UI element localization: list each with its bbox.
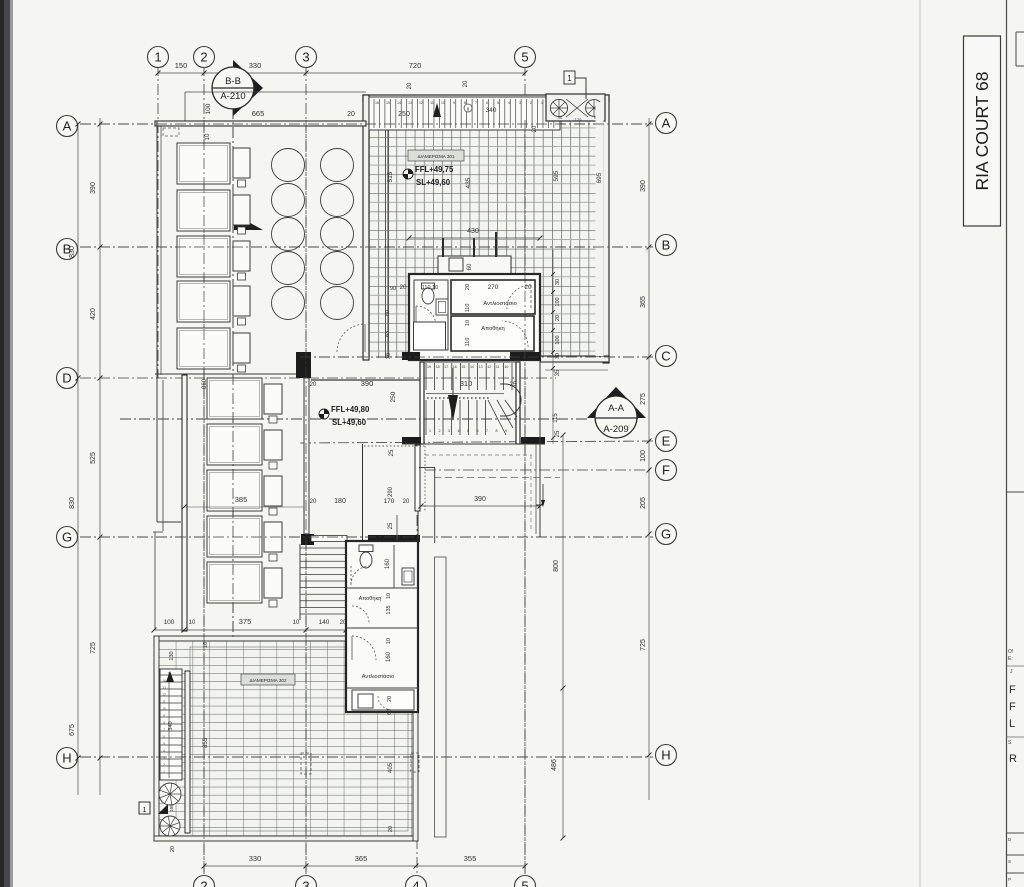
svg-text:G: G: [62, 530, 72, 545]
svg-text:20: 20: [310, 382, 317, 388]
svg-text:E:: E:: [1008, 656, 1013, 662]
svg-text:110 10: 110 10: [422, 285, 438, 291]
svg-text:6: 6: [163, 735, 165, 739]
svg-text:330: 330: [249, 61, 262, 70]
svg-text:310: 310: [460, 379, 473, 388]
svg-text:275: 275: [640, 393, 647, 405]
svg-text:14: 14: [397, 101, 401, 105]
svg-text:355: 355: [464, 854, 477, 863]
svg-text:3: 3: [519, 101, 521, 105]
svg-text:515: 515: [387, 171, 394, 182]
svg-text:ΔΙΑΜΕΡΙΣΜΑ 301: ΔΙΑΜΕΡΙΣΜΑ 301: [417, 154, 455, 159]
svg-text:4: 4: [508, 101, 510, 105]
svg-text:725: 725: [640, 639, 647, 651]
svg-text:2: 2: [163, 763, 165, 767]
svg-text:C: C: [661, 349, 670, 364]
svg-text:420: 420: [90, 308, 97, 320]
svg-text:14: 14: [162, 679, 166, 683]
svg-text:A-210: A-210: [220, 91, 245, 102]
svg-text:100: 100: [555, 335, 561, 344]
svg-text:20: 20: [387, 696, 393, 702]
svg-text:665: 665: [252, 109, 265, 118]
svg-text:60: 60: [387, 709, 393, 715]
svg-text:11: 11: [162, 700, 166, 704]
svg-text:1: 1: [142, 805, 146, 814]
svg-text:595: 595: [553, 170, 560, 181]
svg-text:430: 430: [467, 228, 479, 235]
svg-text:100: 100: [164, 619, 175, 626]
svg-text:115: 115: [553, 413, 559, 423]
svg-text:6: 6: [486, 101, 488, 105]
svg-text:1: 1: [429, 429, 431, 433]
svg-text:90: 90: [558, 115, 563, 120]
svg-text:20: 20: [310, 499, 317, 505]
svg-text:1: 1: [567, 74, 572, 83]
svg-text:390: 390: [90, 182, 97, 194]
svg-text:5: 5: [163, 742, 165, 746]
svg-text:Αντλιοστάσιο: Αντλιοστάσιο: [483, 300, 517, 307]
svg-text:30: 30: [555, 279, 561, 285]
svg-text:5: 5: [497, 101, 499, 105]
svg-text:1: 1: [541, 101, 543, 105]
svg-text:2: 2: [200, 879, 207, 887]
svg-text:4: 4: [412, 879, 419, 887]
svg-text:486: 486: [551, 759, 558, 771]
svg-text:7: 7: [163, 728, 165, 732]
svg-text:20: 20: [170, 846, 176, 852]
svg-text:12: 12: [419, 101, 423, 105]
svg-text:A: A: [662, 116, 671, 131]
svg-text:170: 170: [575, 117, 582, 122]
svg-text:695: 695: [596, 172, 603, 183]
svg-text:525: 525: [90, 452, 97, 464]
svg-text:4: 4: [458, 429, 460, 433]
svg-text:7: 7: [486, 429, 488, 433]
svg-text:10: 10: [162, 707, 166, 711]
svg-text:390: 390: [361, 379, 374, 388]
svg-text:83: 83: [385, 331, 391, 337]
svg-text:F: F: [662, 463, 670, 478]
svg-text:2: 2: [530, 101, 532, 105]
svg-text:11: 11: [430, 101, 434, 105]
svg-text:R: R: [1009, 753, 1017, 765]
svg-text:Αποθήκη: Αποθήκη: [481, 325, 505, 332]
svg-text:13: 13: [479, 365, 483, 369]
svg-text:8: 8: [496, 429, 498, 433]
svg-text:A-A: A-A: [608, 403, 625, 414]
svg-text:15: 15: [461, 365, 465, 369]
svg-text:4: 4: [163, 749, 165, 753]
svg-text:9: 9: [505, 429, 507, 433]
svg-text:5: 5: [467, 429, 469, 433]
svg-text:3: 3: [163, 756, 165, 760]
svg-text:60: 60: [467, 263, 473, 270]
svg-text:20: 20: [525, 285, 532, 291]
svg-text:110: 110: [465, 338, 471, 347]
svg-text:FFL+49,75: FFL+49,75: [415, 165, 454, 174]
svg-text:B: B: [662, 238, 671, 253]
svg-text:205: 205: [640, 497, 647, 509]
svg-text:D: D: [62, 371, 71, 386]
svg-text:ΔΙΑΜΕΡΙΣΜΑ 302: ΔΙΑΜΕΡΙΣΜΑ 302: [249, 678, 287, 683]
svg-text:365: 365: [355, 854, 368, 863]
svg-text:110: 110: [465, 304, 471, 313]
svg-text:H: H: [62, 751, 71, 766]
svg-text:12: 12: [162, 693, 166, 697]
svg-text:18: 18: [436, 365, 440, 369]
svg-text:5: 5: [521, 50, 528, 65]
svg-text:270: 270: [488, 284, 499, 291]
svg-text:135: 135: [386, 605, 392, 614]
svg-text:160: 160: [386, 651, 392, 662]
svg-text:160: 160: [385, 558, 391, 569]
svg-text:A-209: A-209: [603, 424, 628, 435]
svg-text:130: 130: [169, 651, 175, 660]
svg-text:H: H: [661, 748, 670, 763]
svg-text:20: 20: [403, 499, 410, 505]
svg-text:80: 80: [385, 310, 391, 316]
svg-text:19: 19: [427, 365, 431, 369]
svg-text:800: 800: [553, 560, 560, 572]
svg-text:10: 10: [205, 133, 211, 140]
svg-text:5: 5: [521, 879, 528, 887]
svg-text:105: 105: [169, 804, 174, 812]
svg-text:3: 3: [302, 879, 309, 887]
svg-text:140: 140: [319, 619, 330, 626]
svg-text:365: 365: [640, 296, 647, 308]
svg-text:20: 20: [532, 125, 538, 132]
svg-text:340: 340: [486, 107, 497, 114]
svg-text:100: 100: [555, 297, 561, 306]
svg-text:15: 15: [386, 101, 390, 105]
svg-text:2: 2: [200, 50, 207, 65]
svg-text:675: 675: [69, 724, 76, 736]
svg-text:830: 830: [69, 497, 76, 509]
svg-text:290: 290: [388, 486, 394, 497]
svg-text:725: 725: [90, 642, 97, 654]
svg-text:10: 10: [386, 638, 392, 644]
svg-text:435: 435: [465, 177, 472, 188]
svg-text:20: 20: [400, 285, 407, 291]
svg-text:340: 340: [168, 721, 174, 730]
svg-text:10: 10: [386, 593, 392, 599]
svg-text:RIA COURT 68: RIA COURT 68: [972, 72, 992, 191]
svg-text:16: 16: [375, 101, 379, 105]
svg-text:G: G: [661, 527, 671, 542]
svg-text:9: 9: [163, 714, 165, 718]
svg-text:11: 11: [496, 365, 500, 369]
svg-text:390: 390: [474, 496, 486, 503]
svg-text:330: 330: [249, 854, 262, 863]
svg-text:Αποθήκη: Αποθήκη: [359, 595, 382, 602]
svg-text:20: 20: [347, 111, 355, 118]
svg-text:405: 405: [388, 762, 394, 773]
svg-text:13: 13: [162, 686, 166, 690]
svg-text:100: 100: [205, 103, 212, 114]
svg-text:385: 385: [235, 495, 248, 504]
svg-text:10: 10: [441, 101, 445, 105]
svg-text:720: 720: [409, 61, 422, 70]
svg-text:1: 1: [163, 770, 165, 774]
svg-text:30: 30: [386, 353, 392, 359]
svg-text:20: 20: [388, 826, 394, 832]
svg-text:30: 30: [555, 353, 561, 359]
svg-text:3: 3: [448, 429, 450, 433]
svg-text:830: 830: [69, 246, 76, 258]
svg-text:20: 20: [463, 80, 469, 87]
svg-text:375: 375: [239, 617, 252, 626]
svg-text:A: A: [63, 119, 72, 134]
svg-text:9: 9: [453, 101, 455, 105]
svg-text:8: 8: [163, 721, 165, 725]
svg-text:20: 20: [555, 315, 561, 321]
svg-text:25: 25: [388, 522, 394, 529]
svg-text:F: F: [1009, 701, 1016, 713]
svg-text:250: 250: [398, 111, 410, 118]
svg-text:20: 20: [407, 82, 413, 89]
svg-text:6: 6: [477, 429, 479, 433]
svg-text:390: 390: [640, 180, 647, 192]
svg-text:10: 10: [189, 620, 196, 626]
svg-text:SL+49,60: SL+49,60: [332, 418, 367, 427]
svg-text:7: 7: [475, 101, 477, 105]
svg-text:10: 10: [293, 620, 300, 626]
svg-text:180: 180: [334, 498, 346, 505]
svg-text:13: 13: [408, 101, 412, 105]
svg-text:17: 17: [444, 365, 448, 369]
svg-text:SL+49,60: SL+49,60: [416, 178, 451, 187]
svg-text:12: 12: [487, 365, 491, 369]
svg-text:100: 100: [640, 450, 647, 462]
svg-text:L: L: [1009, 718, 1015, 730]
svg-text:P: P: [1008, 877, 1011, 882]
svg-text:150: 150: [175, 61, 188, 70]
svg-text:25: 25: [389, 449, 395, 456]
svg-text:B-B: B-B: [225, 76, 241, 87]
svg-text:Αντλιοστάσιο: Αντλιοστάσιο: [362, 673, 394, 680]
svg-text:10: 10: [504, 365, 508, 369]
svg-text:O!: O!: [1008, 649, 1013, 655]
svg-text:20: 20: [465, 284, 471, 290]
svg-text:14: 14: [470, 365, 474, 369]
svg-text:3: 3: [302, 50, 309, 65]
svg-text:F: F: [1009, 684, 1016, 696]
svg-text:250: 250: [390, 391, 397, 402]
svg-text:2: 2: [439, 429, 441, 433]
svg-text:170: 170: [384, 498, 395, 505]
svg-text:1: 1: [154, 50, 161, 65]
svg-text:25: 25: [555, 430, 561, 437]
svg-text:FFL+49,80: FFL+49,80: [331, 405, 370, 414]
svg-text:90: 90: [390, 286, 396, 292]
svg-text:10: 10: [465, 320, 471, 326]
svg-text:E: E: [662, 434, 671, 449]
svg-text:S: S: [1008, 859, 1011, 864]
